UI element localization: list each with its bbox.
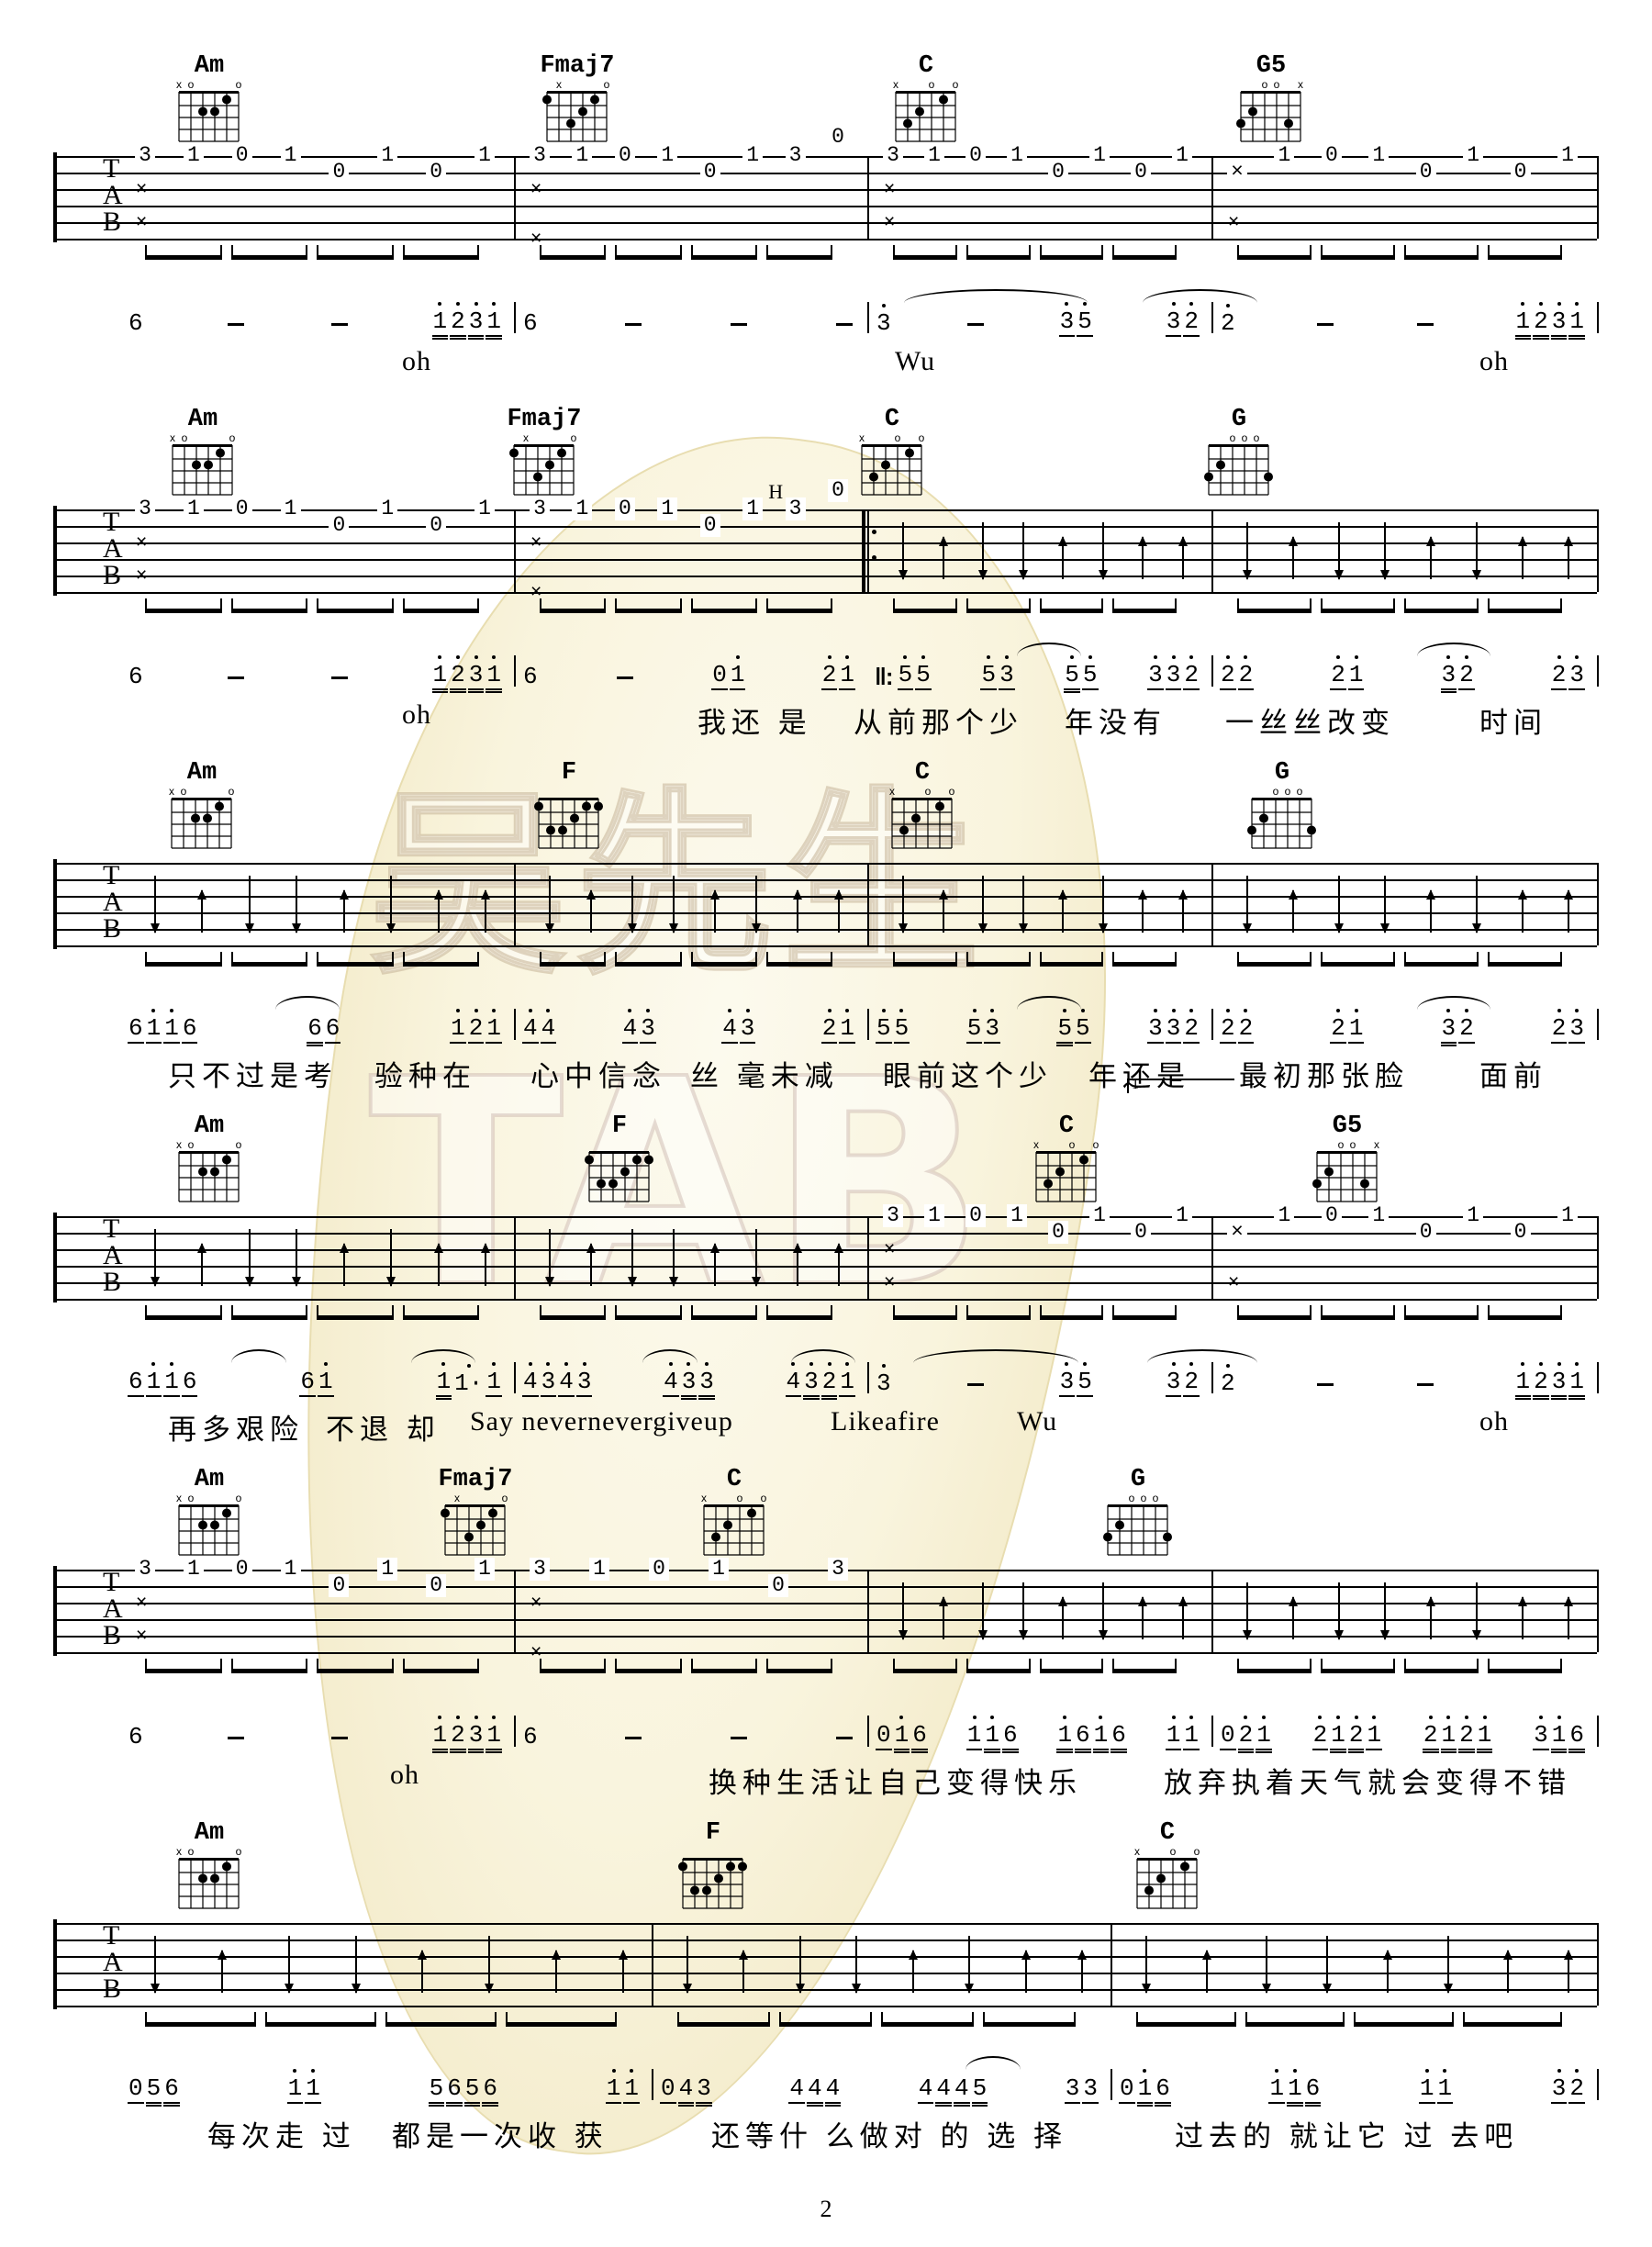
jianpu-cell: 11 <box>1418 2075 1454 2104</box>
tab-note: 0 <box>1048 161 1068 184</box>
jianpu-token: 6 <box>182 1015 198 1044</box>
octave-dot <box>1088 655 1092 659</box>
tab-note: 1 <box>1172 144 1192 167</box>
strum-arrowhead <box>1262 1984 1271 1994</box>
jianpu-token: 6 <box>325 1015 341 1044</box>
tab-note: 1 <box>1463 1204 1483 1227</box>
strum-arrowhead <box>292 1277 301 1287</box>
svg-text:o: o <box>949 785 955 798</box>
octave-dot <box>1557 1716 1561 1719</box>
strum-arrow <box>1142 1597 1144 1639</box>
jianpu-cell <box>1413 323 1437 338</box>
strum-arrow <box>549 1229 551 1286</box>
jianpu-cell <box>224 676 248 691</box>
strum-arrowhead <box>899 923 908 933</box>
double-underline <box>450 338 466 340</box>
strum-arrow <box>249 876 251 933</box>
tab-note: 3 <box>786 497 806 520</box>
double-underline <box>1056 1045 1073 1046</box>
double-underline <box>935 2105 952 2107</box>
jianpu-token: 1 <box>1515 308 1532 337</box>
mute-mark: × <box>884 1272 895 1291</box>
svg-text:x: x <box>893 78 899 91</box>
tab-note: 1 <box>474 144 495 167</box>
system-1: AmxooFmaj7xoCxooG5ooxTAB31010101××310101… <box>0 50 1652 404</box>
jianpu-barline <box>1111 2069 1112 2100</box>
octave-dot <box>1539 1362 1543 1366</box>
strum-arrowhead <box>552 1950 561 1960</box>
tab-note: 0 <box>615 144 635 167</box>
mute-mark: × <box>530 1593 541 1612</box>
jianpu-cell: 53 <box>966 1015 1001 1044</box>
jianpu-token: 4 <box>558 1369 575 1397</box>
strum-arrowhead <box>218 1950 227 1960</box>
octave-dot <box>705 1362 709 1366</box>
jianpu-cell: 3 <box>875 310 893 337</box>
jianpu-token: 1 <box>287 2075 304 2104</box>
strum-arrow <box>968 1936 970 1993</box>
jianpu-token: 2 <box>1220 662 1236 690</box>
strum-arrow <box>390 876 392 933</box>
strum-arrowhead <box>1019 923 1028 933</box>
jianpu-token: 2 <box>450 1722 466 1750</box>
system-3: AmxooFCxooGoooTAB61166612144434321555355… <box>0 757 1652 1111</box>
strum-arrow <box>622 1951 624 1993</box>
chord-name: F <box>671 1819 755 1847</box>
jianpu-token: 3 <box>1147 1015 1164 1044</box>
jianpu-token: 2 <box>1348 1722 1365 1750</box>
beam <box>893 1659 957 1673</box>
octave-dot <box>492 302 496 306</box>
strum-arrowhead <box>1426 889 1435 900</box>
strum-arrow <box>201 890 203 933</box>
octave-dot <box>1372 1716 1376 1719</box>
tab-staff-line <box>55 542 1597 544</box>
strum-arrow <box>902 876 904 933</box>
chord-diagram: xoo <box>162 785 241 856</box>
octave-dot <box>628 1009 631 1012</box>
beam <box>231 598 308 613</box>
jianpu-token: 5 <box>1056 1015 1073 1044</box>
mute-mark: × <box>884 212 895 231</box>
tab-note: 1 <box>377 144 397 167</box>
svg-text:o: o <box>1338 1138 1345 1151</box>
chord-diagram: xoo <box>1128 1845 1207 1917</box>
beam <box>677 2012 770 2027</box>
jianpu-token: 6 <box>299 1369 316 1397</box>
jianpu-token: 3 <box>1441 662 1457 690</box>
tab-note: 1 <box>1089 144 1110 167</box>
beam <box>1404 1659 1479 1673</box>
lyric-phrase: 不退 却 <box>326 1406 441 1448</box>
double-underline <box>163 2105 180 2107</box>
jianpu-cell: 22 <box>1219 662 1255 690</box>
octave-dot <box>612 2069 616 2073</box>
tab-clef-letter: B <box>103 207 121 238</box>
jianpu-cell <box>727 1737 751 1751</box>
jianpu-cell: 016 <box>1118 2075 1172 2104</box>
jianpu-token: 3 <box>696 2075 712 2104</box>
chord-diagram <box>674 1845 753 1917</box>
octave-dot <box>921 655 925 659</box>
beam <box>540 598 606 613</box>
jianpu-dash <box>331 1737 348 1740</box>
svg-text:o: o <box>737 1492 743 1504</box>
measure-barline <box>1597 863 1599 945</box>
strum-arrowhead <box>1518 889 1527 900</box>
chord-diagram: oox <box>1232 78 1311 150</box>
strum-arrowhead <box>151 923 160 933</box>
beam <box>766 245 832 260</box>
tab-note: 1 <box>1368 1204 1389 1227</box>
svg-text:o: o <box>1273 785 1279 798</box>
octave-dot <box>1575 1009 1579 1012</box>
jianpu-cell: 316 <box>1532 1722 1586 1750</box>
double-underline <box>1056 1751 1073 1753</box>
mute-mark: × <box>136 565 147 585</box>
octave-dot <box>492 1716 496 1719</box>
strum-arrowhead <box>545 923 554 933</box>
svg-text:o: o <box>188 78 195 91</box>
strum-arrow <box>1292 890 1294 933</box>
svg-text:o: o <box>188 1492 195 1504</box>
tab-note: 0 <box>232 497 252 520</box>
strum-arrow <box>1430 890 1432 933</box>
strum-arrowhead <box>586 1243 596 1253</box>
strum-arrow <box>296 876 297 933</box>
jianpu-cell: 056 <box>127 2075 181 2104</box>
chord-diagram: xoo <box>1027 1138 1106 1210</box>
octave-dot <box>646 1009 650 1012</box>
svg-text:x: x <box>176 78 182 91</box>
lyric-phrase: 都是一次收 获 <box>392 2113 608 2154</box>
mute-mark: × <box>884 179 895 198</box>
double-underline <box>1075 1751 1091 1753</box>
jianpu-cell <box>832 1737 856 1751</box>
jianpu-measure: 22213223 <box>1219 657 1586 690</box>
jianpu-measure: 61231 <box>127 1717 503 1750</box>
double-underline <box>1533 338 1549 340</box>
jianpu-token: 1 <box>839 662 855 690</box>
jianpu-token: 3 <box>468 662 485 690</box>
strum-arrowhead <box>899 1630 908 1640</box>
jianpu-repeat-sign: ‖: <box>875 664 893 690</box>
slur-arc <box>1147 1349 1257 1363</box>
jianpu-measure: 05611565611 <box>127 2071 641 2104</box>
tab-staff-line <box>55 1940 1597 1941</box>
slur-arc <box>411 1349 475 1363</box>
jianpu-cell: 23 <box>1550 1015 1586 1044</box>
jianpu-cell: 332 <box>1146 1015 1200 1044</box>
double-underline <box>1515 1398 1532 1400</box>
strum-arrow <box>1081 1951 1083 1993</box>
double-underline <box>468 691 485 693</box>
beam <box>1321 952 1395 967</box>
jianpu-cell: 21 <box>820 662 856 690</box>
double-underline <box>1305 2105 1322 2107</box>
lyric-phrase: oh <box>1479 1406 1509 1437</box>
octave-dot <box>845 655 849 659</box>
beam <box>779 2012 872 2027</box>
jianpu-token: 3 <box>1065 2075 1081 2104</box>
jianpu-token: 5 <box>980 662 997 690</box>
strum-arrowhead <box>1564 889 1573 900</box>
double-underline <box>1551 338 1568 340</box>
measure-barline <box>867 509 869 592</box>
octave-dot <box>973 1716 977 1719</box>
tab-note: 0 <box>1322 144 1342 167</box>
jianpu-cell: 4343 <box>521 1369 593 1397</box>
double-underline <box>1111 1751 1127 1753</box>
jianpu-token: 5 <box>915 662 932 690</box>
strum-arrow <box>421 1951 423 1993</box>
jianpu-cell: 6 <box>127 664 145 690</box>
double-underline <box>1155 2105 1171 2107</box>
beam <box>506 2012 617 2027</box>
beam <box>145 952 222 967</box>
jianpu-cell: 6 <box>127 1724 145 1750</box>
jianpu-cell <box>964 323 988 338</box>
jianpu-token: 2 <box>1568 2075 1585 2104</box>
chord-diagram <box>530 785 608 856</box>
beam <box>540 1305 606 1320</box>
strum-arrowhead <box>909 1950 918 1960</box>
jianpu-dash <box>1417 1383 1434 1387</box>
strum-arrowhead <box>1444 1984 1453 1994</box>
beam <box>766 1305 832 1320</box>
octave-dot <box>456 1009 460 1012</box>
double-underline <box>1533 1398 1549 1400</box>
strum-arrow <box>982 522 984 579</box>
strum-arrowhead <box>1564 1950 1573 1960</box>
svg-text:o: o <box>1285 785 1291 798</box>
chord-name: G <box>1096 1466 1180 1493</box>
jianpu-dash <box>1417 323 1434 327</box>
jianpu-token: 3 <box>1568 1015 1585 1044</box>
tab-note: 1 <box>572 497 592 520</box>
strum-arrow <box>1182 1597 1184 1639</box>
tab-note: 1 <box>184 144 204 167</box>
svg-text:o: o <box>761 1492 767 1504</box>
system-start-barline <box>53 152 57 242</box>
octave-dot <box>474 302 478 306</box>
jianpu-token: 0 <box>128 2075 144 2104</box>
strum-arrow <box>1266 1936 1267 1993</box>
octave-dot <box>1226 1009 1230 1012</box>
jianpu-barline <box>1597 1362 1599 1393</box>
octave-dot <box>1189 1009 1193 1012</box>
jianpu-token: 3 <box>803 1369 820 1397</box>
tab-note: 0 <box>1131 1221 1151 1244</box>
strum-arrow <box>755 1229 757 1286</box>
jianpu-measure: 33532 <box>875 1364 1200 1397</box>
jianpu-token: 1 <box>1330 1722 1346 1750</box>
lyric-phrase: 最初那张脸 <box>1239 1053 1409 1094</box>
octave-dot <box>899 1716 903 1719</box>
double-underline <box>681 1398 698 1400</box>
jianpu-measure: 0161161132 <box>1118 2071 1586 2104</box>
chord-name: C <box>880 759 965 787</box>
jianpu-token: 1 <box>1287 2075 1303 2104</box>
mute-mark: × <box>530 532 541 552</box>
lyric-phrase: Say nevernevergiveup <box>470 1406 733 1437</box>
jianpu-token: 2 <box>1330 662 1346 690</box>
jianpu-cell: 21 <box>820 1015 856 1044</box>
jianpu-token: 3 <box>1059 308 1076 337</box>
jianpu-token: 3 <box>681 1369 698 1397</box>
jianpu-measure: 61231 <box>127 304 503 337</box>
measure-barline <box>1597 509 1599 592</box>
jianpu-token: 3 <box>1059 1369 1076 1397</box>
jianpu-token: 6 <box>128 1724 144 1750</box>
tab-note: 3 <box>530 144 550 167</box>
strum-arrowhead <box>1380 923 1390 933</box>
strum-arrowhead <box>545 1277 554 1287</box>
jianpu-token: 4 <box>522 1015 539 1044</box>
octave-dot <box>828 1009 832 1012</box>
jianpu-token: 5 <box>966 1015 983 1044</box>
octave-dot <box>546 1009 550 1012</box>
octave-dot <box>899 1009 903 1012</box>
jianpu-token: 1 <box>436 1369 452 1397</box>
jianpu-token: 2 <box>450 662 466 690</box>
jianpu-barline <box>1597 2069 1599 2100</box>
jianpu-token: 6 <box>182 1369 198 1397</box>
strum-arrowhead <box>1426 1596 1435 1606</box>
strum-arrowhead <box>1142 1984 1151 1994</box>
strum-arrowhead <box>899 570 908 580</box>
tab-staff-line <box>55 1299 1597 1301</box>
jianpu-measure: 22213223 <box>1219 1011 1586 1044</box>
measure-barline <box>1211 509 1213 592</box>
strum-arrowhead <box>151 1277 160 1287</box>
jianpu-token: 1 <box>163 1369 180 1397</box>
jianpu-cell <box>224 1737 248 1751</box>
svg-text:x: x <box>1374 1138 1379 1151</box>
octave-dot <box>1226 1364 1230 1368</box>
octave-dot <box>1262 1716 1266 1719</box>
octave-dot <box>1483 1716 1487 1719</box>
tab-staff-line <box>55 1586 1597 1588</box>
beam <box>1112 1659 1177 1673</box>
strum-arrowhead <box>939 1596 948 1606</box>
tab-note: 1 <box>657 497 677 520</box>
mute-mark: × <box>136 532 147 552</box>
strum-arrow <box>1387 1951 1389 1993</box>
octave-dot <box>973 1009 977 1012</box>
strum-arrowhead <box>1021 1950 1031 1960</box>
jianpu-cell <box>328 676 352 691</box>
mute-mark: × <box>136 179 147 198</box>
double-underline <box>1137 2105 1154 2107</box>
lyric-phrase: 再多艰险 <box>168 1406 304 1448</box>
jianpu-barline <box>514 1009 516 1040</box>
jianpu-token: 4 <box>678 2075 695 2104</box>
jianpu-cell: 61 <box>298 1369 334 1397</box>
slur-arc <box>642 1349 698 1363</box>
strum-arrowhead <box>340 889 349 900</box>
beam <box>145 1659 222 1673</box>
jianpu-cell: 121 <box>449 1015 503 1044</box>
beam <box>265 2012 376 2027</box>
strum-arrowhead <box>292 923 301 933</box>
double-underline <box>825 2105 842 2107</box>
jianpu-token: 1 <box>1268 2075 1285 2104</box>
strum-arrow <box>485 1244 486 1286</box>
beam <box>1404 1305 1479 1320</box>
beam <box>1321 598 1395 613</box>
octave-dot <box>1143 2069 1146 2073</box>
svg-text:o: o <box>1153 1492 1159 1504</box>
beam <box>317 245 394 260</box>
beam <box>766 598 832 613</box>
tab-note: 1 <box>924 1204 944 1227</box>
strum-arrow <box>1102 876 1104 933</box>
jianpu-cell: 55 <box>875 1015 910 1044</box>
jianpu-cell <box>832 323 856 338</box>
tab-note: 0 <box>828 126 848 149</box>
jianpu-barline <box>1211 302 1213 333</box>
strum-arrowhead <box>1178 536 1188 546</box>
jianpu-token: 3 <box>984 1015 1000 1044</box>
jianpu-token: 5 <box>972 2075 988 2104</box>
strum-arrow <box>1102 522 1104 579</box>
chord-name: Am <box>167 1112 251 1140</box>
beam <box>1488 1305 1562 1320</box>
jianpu-token: 4 <box>721 1015 738 1044</box>
slur-arc <box>1417 643 1490 656</box>
jianpu-token: 6 <box>522 1724 539 1750</box>
beam <box>145 1305 222 1320</box>
strum-arrowhead <box>796 1984 805 1994</box>
jianpu-cell: 6 <box>521 1724 540 1750</box>
jianpu-measure: 555355332 <box>875 1011 1200 1044</box>
strum-arrow <box>673 876 675 933</box>
strum-arrowhead <box>1138 1596 1147 1606</box>
jianpu-dash <box>625 1737 642 1740</box>
jianpu-token: 4 <box>622 1015 639 1044</box>
strum-arrowhead <box>1289 889 1298 900</box>
octave-dot <box>845 1009 849 1012</box>
strum-arrow <box>390 1229 392 1286</box>
beam <box>893 952 957 967</box>
strum-arrow <box>555 1951 557 1993</box>
strum-arrow <box>1326 1936 1328 1993</box>
strum-arrow <box>1384 876 1386 933</box>
beam <box>1237 598 1312 613</box>
page-number: 2 <box>0 2196 1652 2223</box>
octave-dot <box>1443 2069 1446 2073</box>
measure-barline <box>867 1570 869 1652</box>
tab-staff-line <box>55 912 1597 914</box>
mute-mark: × <box>136 212 147 231</box>
octave-dot <box>990 1009 994 1012</box>
double-underline <box>821 1398 838 1400</box>
octave-dot <box>1226 304 1230 307</box>
jianpu-token: 2 <box>821 1015 838 1044</box>
strum-arrow <box>1022 522 1024 579</box>
beam <box>317 1305 394 1320</box>
chord-name: G <box>1240 759 1324 787</box>
jianpu-cell: 6 <box>127 310 145 337</box>
measure-barline <box>514 1570 516 1652</box>
svg-text:o: o <box>1069 1138 1076 1151</box>
strum-arrow <box>221 1951 223 1993</box>
strum-arrowhead <box>1019 570 1028 580</box>
strum-arrow <box>714 1244 716 1286</box>
jianpu-cell <box>621 323 645 338</box>
jianpu-token: 1 <box>432 1722 449 1750</box>
